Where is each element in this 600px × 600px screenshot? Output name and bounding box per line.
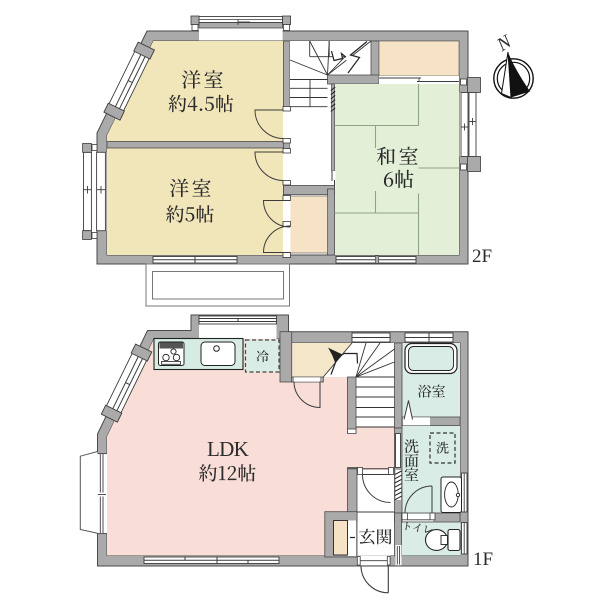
- svg-text:1F: 1F: [473, 549, 493, 570]
- svg-text:LDK: LDK: [207, 437, 249, 461]
- svg-text:2F: 2F: [472, 246, 492, 267]
